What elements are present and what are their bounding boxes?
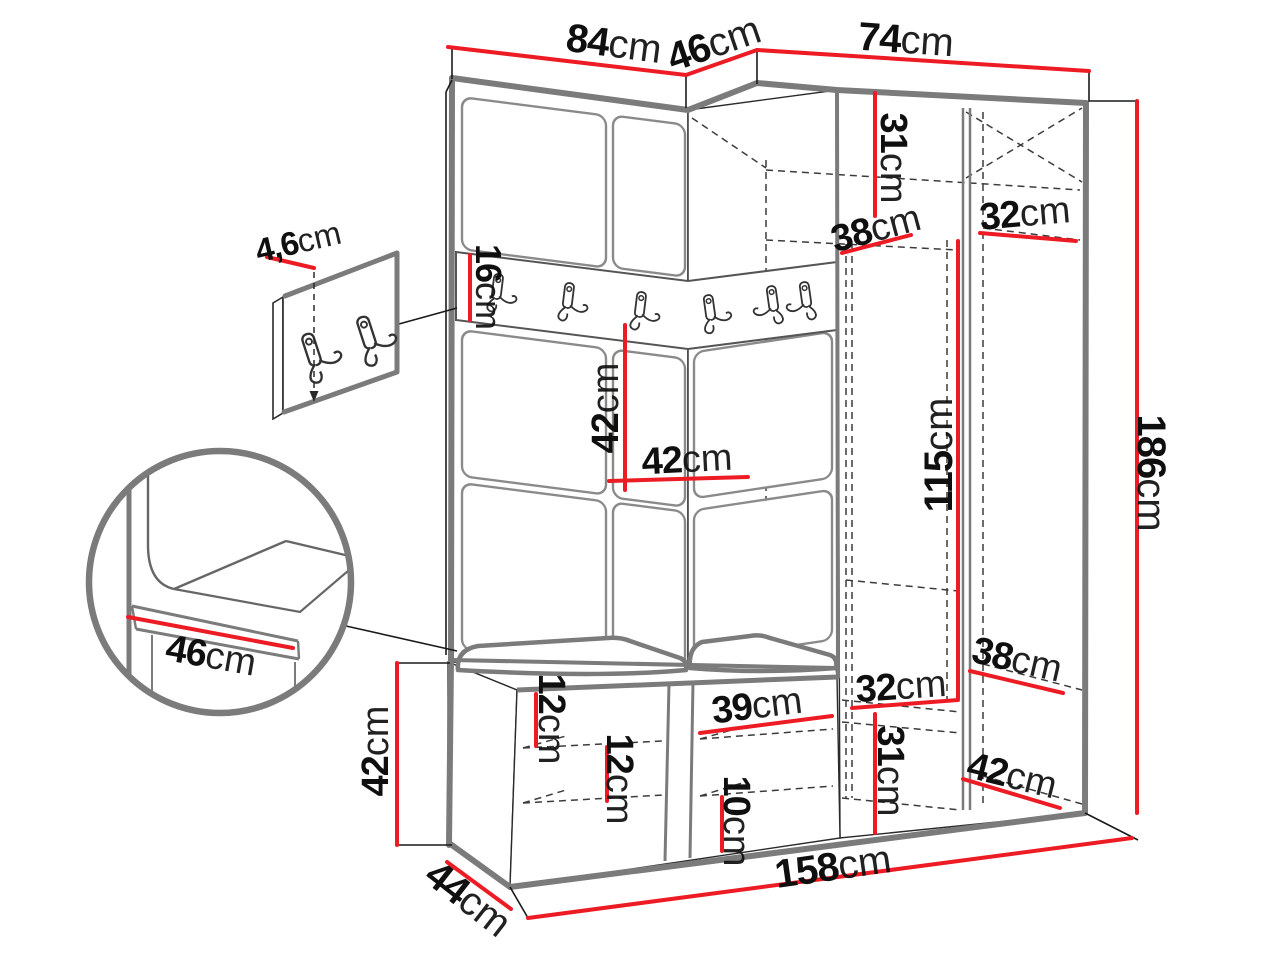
dim-label-46cm-top: 46cm xyxy=(662,8,767,81)
dim-label-12cm-a: 12cm xyxy=(530,674,572,765)
dim-label-31cm-bottom: 31cm xyxy=(869,726,911,817)
dim-label-16cm-rail: 16cm xyxy=(469,244,510,330)
dim-label-31cm-top: 31cm xyxy=(872,113,914,204)
dim-label-42cm-panel-h: 42cm xyxy=(640,437,733,484)
dim-label-12cm-b: 12cm xyxy=(598,734,640,825)
hook-panel-detail xyxy=(273,252,402,419)
circle-detail-connector xyxy=(346,626,457,651)
dim-label-32cm-top: 32cm xyxy=(978,189,1072,239)
dim-label-115cm-hanging: 115cm xyxy=(917,398,961,513)
dim-label-42cm-bench-height: 42cm xyxy=(355,706,397,797)
dim-label-4-6cm-thickness: 4,6cm xyxy=(252,213,345,269)
dim-label-42cm-panel-v: 42cm xyxy=(585,363,627,454)
dim-label-186cm-height: 186cm xyxy=(1129,414,1173,531)
dim-label-10cm-bench: 10cm xyxy=(715,776,757,867)
panel-top-left xyxy=(462,97,606,267)
diagram-canvas: 84cm 46cm 74cm 186cm 31cm 38cm 32cm 16cm… xyxy=(0,0,1280,960)
dim-label-32cm-bottom: 32cm xyxy=(854,663,948,711)
panel-top-right xyxy=(613,116,685,277)
dim-label-74cm-top: 74cm xyxy=(857,15,956,66)
wardrobe-dimension-diagram: 84cm 46cm 74cm 186cm 31cm 38cm 32cm 16cm… xyxy=(0,0,1280,960)
